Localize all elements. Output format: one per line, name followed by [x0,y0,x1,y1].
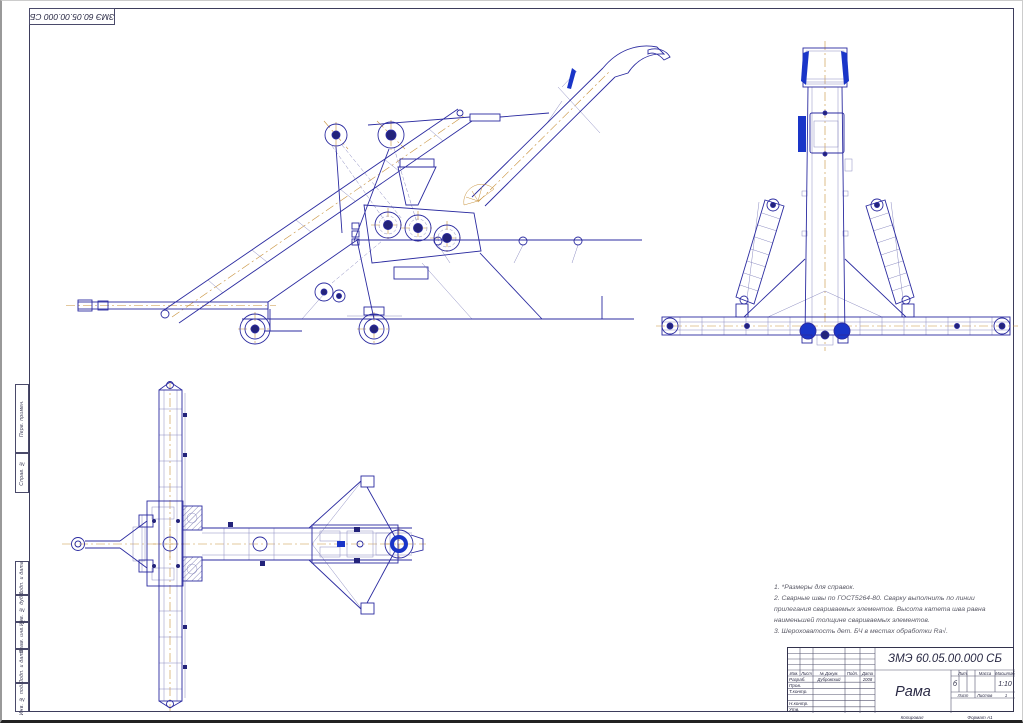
drawing-sheet: ЗМЭ 60.05.00.000 СБ Перв. примен. Справ.… [0,0,1023,723]
row-nkontr: Н.контр. [789,701,813,707]
front-view-blue-flaps [798,51,849,152]
part-title: Рама [875,670,951,713]
sheets-value: 1 [999,692,1013,698]
plan-view-main [72,382,424,709]
col-podp: Подп. [845,670,860,676]
plan-view-centerlines [62,381,426,711]
razrab-date: 2008 [860,676,875,682]
razrab-name: Дубровский [813,676,845,682]
row-utv: Утв. [789,707,813,713]
side-view-blue-wedge [567,68,576,89]
row-tkontr: Т.контр. [789,688,813,694]
margin-box-vzam-inv: Взам. инв. № [15,622,29,649]
margin-box-perv-primen: Перв. примен. [15,384,29,453]
front-view-thin [662,51,1010,345]
margin-box-inv-podl: Инв. № подл. [15,683,29,712]
front-view-drawing [652,36,1022,356]
sheets-label: Листов [975,692,999,698]
row-razrab: Разраб. [789,676,813,682]
sheet-label: Лист [951,692,975,698]
margin-label: Справ. № [19,460,25,486]
note-line-1: 1. *Размеры для справок. [774,582,984,593]
plan-view-drawing [57,379,427,714]
plan-view-thin [133,390,412,701]
corner-stamp: ЗМЭ 60.05.00.000 СБ [29,8,115,25]
front-view-main [662,48,1010,343]
side-view-drawing [62,31,677,361]
row-prov: Пров. [789,682,813,688]
note-line-5: 3. Шероховатость дет. БЧ в местах обрабо… [774,626,984,637]
margin-box-sprav-no: Справ. № [15,453,29,493]
margin-label: Подп. и дата [19,649,25,684]
front-view-centerlines [656,41,1018,351]
doc-number: ЗМЭ 60.05.00.000 СБ [875,648,1015,670]
note-line-2: 2. Сварные швы по ГОСТ5264-80. Сварку вы… [774,593,984,604]
margin-box-podp-data-1: Подп. и дата [15,561,29,595]
lit-value: б [951,676,959,692]
mass-label: Масса [975,670,995,676]
margin-label: Взам. инв. № [19,618,25,653]
margin-box-podp-data-2: Подп. и дата [15,649,29,683]
footer-format: Формат А1 [947,713,1013,721]
side-view-main [78,46,670,344]
title-block: ЗМЭ 60.05.00.000 СБ Рама Изм. Лист № Док… [787,647,1014,712]
technical-notes: 1. *Размеры для справок. 2. Сварные швы … [774,582,984,637]
margin-label: Инв. № подл. [19,680,25,715]
note-line-3: прилегания свариваемых элементов. Высота… [774,604,984,615]
corner-stamp-text: ЗМЭ 60.05.00.000 СБ [30,12,114,22]
plan-view-blue-detail [337,541,345,547]
scale-value: 1:10 [995,676,1015,692]
margin-label: Перв. примен. [19,400,25,437]
note-line-4: наименьшей толщине свариваемых элементов… [774,615,984,626]
side-view-centerlines [66,72,609,346]
